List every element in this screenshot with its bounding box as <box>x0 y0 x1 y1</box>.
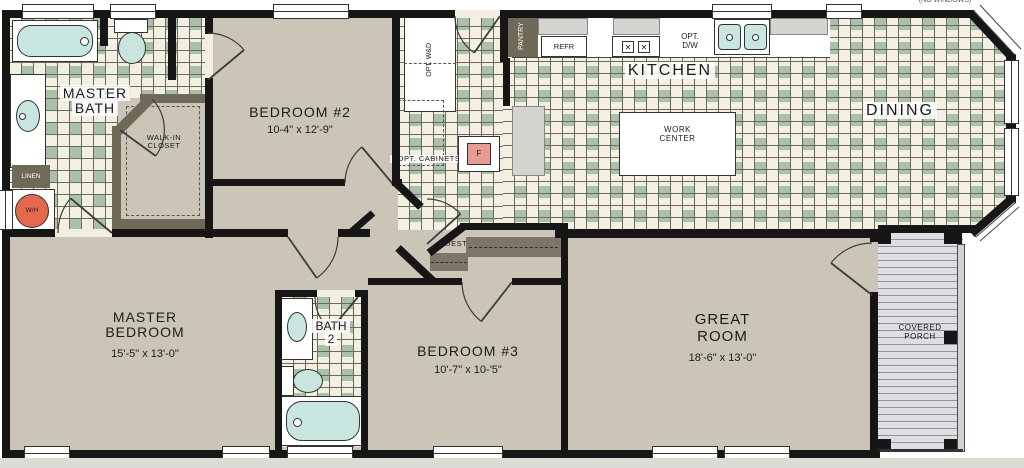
vanity-faucet <box>19 113 26 120</box>
dining-label: DINING <box>845 102 955 120</box>
refrigerator-label: REFR <box>554 42 574 51</box>
window <box>712 4 772 19</box>
closet-shelf-outline <box>126 106 200 216</box>
floor-plan: REFR ✕✕ OPT.D/W WORKCENTER PANTRY OPT. W… <box>0 0 1024 468</box>
walk-in-closet-label: WALK-INCLOSET <box>126 134 202 151</box>
upper-cabinet <box>613 18 660 35</box>
work-center-label: WORKCENTER <box>619 126 736 144</box>
wall-segment <box>338 229 370 237</box>
tub-drain <box>293 418 302 427</box>
wall-segment <box>275 290 282 450</box>
stove-burner-icon: ✕ <box>622 41 634 53</box>
kitchen-side-cabinet <box>512 106 545 176</box>
wall-segment <box>205 18 213 34</box>
wall-segment <box>205 179 345 186</box>
furnace-box: F <box>467 143 491 165</box>
bath2-sink <box>287 312 307 342</box>
porch-edge <box>878 449 963 452</box>
bedroom3-dims: 10'-7" x 10-'5" <box>378 364 558 376</box>
opt-washer-dryer-label: OPT. W&D <box>426 32 434 88</box>
wall-segment <box>361 290 368 450</box>
kitchen-label: KITCHEN <box>610 62 730 80</box>
bedroom2-label: BEDROOM #2 <box>210 105 390 120</box>
refrigerator: REFR <box>541 36 587 57</box>
bedroom3-label: BEDROOM #3 <box>378 344 558 359</box>
door-opening <box>55 229 112 237</box>
door-opening <box>317 290 355 297</box>
door-opening <box>455 10 500 18</box>
wall-segment <box>10 229 56 237</box>
wall-segment <box>392 18 400 183</box>
work-center-island <box>619 112 736 176</box>
window <box>826 4 862 19</box>
no-windows-annotation: (NO WINDOWS) <box>900 0 990 5</box>
bedroom2-dims: 10-4" x 12'-9" <box>210 124 390 136</box>
door-opening <box>205 34 213 78</box>
toilet-tank <box>114 19 148 33</box>
opt-dishwasher-label: OPT.D/W <box>668 33 712 51</box>
closet-wall <box>140 94 213 103</box>
window <box>0 190 13 230</box>
wall-segment <box>205 78 213 238</box>
water-heater-label: W/H <box>26 207 39 214</box>
wall-segment <box>503 58 510 106</box>
wall-segment <box>100 18 108 46</box>
wall-segment <box>870 292 878 452</box>
great-room-dims: 18'-6" x 13'-0" <box>650 352 795 364</box>
image-edge <box>0 458 1024 468</box>
covered-porch-label: COVEREDPORCH <box>880 324 960 342</box>
porch-post <box>944 233 962 244</box>
guest-closet-shelf <box>430 253 468 271</box>
stove-burner-icon: ✕ <box>638 41 650 53</box>
bath2-label: BATH2 <box>307 320 355 346</box>
wall-segment <box>555 229 880 238</box>
wall-segment <box>460 223 561 230</box>
linen-label: LINEN <box>21 173 40 180</box>
wall-segment <box>561 223 568 450</box>
guest-closet-shelf <box>466 237 561 257</box>
wall-segment <box>878 225 980 233</box>
sink-drain <box>752 34 759 41</box>
door-opening <box>870 242 878 292</box>
tub-drain <box>80 37 89 46</box>
closet-wall <box>112 219 212 229</box>
toilet-bowl <box>118 32 146 64</box>
opt-cabinets-label: OPT. CABINETS <box>390 155 468 163</box>
upper-cabinet <box>538 18 588 35</box>
window <box>110 4 156 19</box>
wall-segment <box>2 10 10 458</box>
stove: ✕✕ <box>612 36 660 57</box>
guest-closet-label: GUEST <box>432 240 474 248</box>
window <box>22 4 94 19</box>
master-bedroom-label: MASTERBEDROOM <box>60 310 230 341</box>
window <box>273 4 349 19</box>
upper-cabinet <box>770 18 828 35</box>
wall-segment <box>512 278 561 285</box>
pantry-label: PANTRY <box>506 15 538 57</box>
furnace-label: F <box>477 149 482 158</box>
great-room-label: GREATROOM <box>650 312 795 345</box>
closet-wall <box>112 126 121 229</box>
porch-rail <box>957 244 965 452</box>
wall-segment <box>500 14 508 62</box>
door-opening <box>345 179 392 186</box>
master-bath-label: MASTERBATH <box>40 86 150 117</box>
wall-segment <box>112 229 288 237</box>
door-opening <box>288 229 338 237</box>
sink-drain <box>726 34 733 41</box>
bath2-toilet-bowl <box>293 369 323 393</box>
water-heater: W/H <box>15 194 49 228</box>
master-bedroom-dims: 15'-5" x 13'-0" <box>60 348 230 360</box>
wall-segment <box>168 18 176 80</box>
window <box>1004 128 1019 196</box>
door-opening <box>462 278 512 285</box>
window <box>1004 60 1019 124</box>
wall-segment <box>368 278 462 285</box>
linen-closet: LINEN <box>12 165 50 188</box>
